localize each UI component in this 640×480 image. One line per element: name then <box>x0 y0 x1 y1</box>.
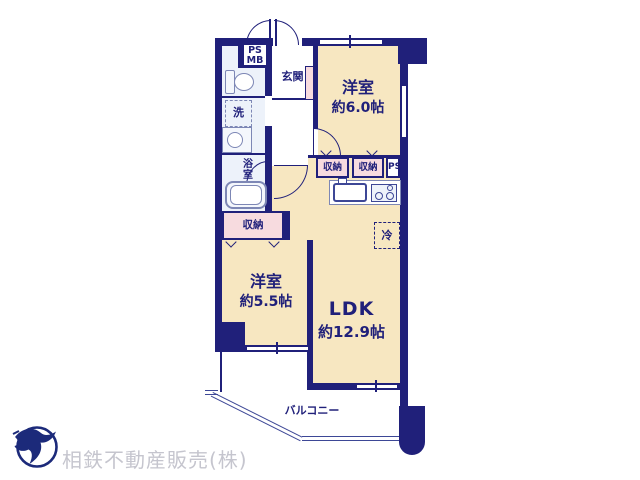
room-name: 洋室 <box>317 78 399 98</box>
window-bedroom6-right <box>400 86 408 137</box>
window-mullion <box>276 342 278 354</box>
wall-right-lower <box>400 137 408 408</box>
wall-ldk-bottom-stub <box>396 383 408 390</box>
wall-top-mid <box>302 38 320 46</box>
closet-kitchen-1: 収納 <box>316 157 349 178</box>
stove-burner <box>387 185 393 191</box>
wall-storage-ldk <box>283 211 290 240</box>
balcony-rail-bottom <box>302 436 399 441</box>
room-size: 約12.9帖 <box>303 323 400 342</box>
wall-left <box>215 38 222 352</box>
wall-ldk-bottom <box>307 383 357 390</box>
mb-label: MB <box>244 56 266 66</box>
kitchen-sink <box>333 183 367 202</box>
pipe-space-meter-box: PS MB <box>242 43 268 67</box>
room-name: 洋室 <box>224 272 308 292</box>
entrance-label: 玄関 <box>272 70 313 84</box>
washer-label: 洗 <box>225 106 252 120</box>
company-name: 相鉄不動産販売(株) <box>62 444 248 473</box>
window-mullion <box>375 380 377 392</box>
room-name: LDK <box>303 298 400 322</box>
window-bedroom6-top <box>320 38 382 46</box>
pipe-space-box: PS <box>386 157 400 178</box>
entrance-door-left-arc <box>246 20 271 45</box>
balcony-pillar <box>399 406 425 455</box>
closet-label: 収納 <box>323 162 342 173</box>
stove-burner <box>375 192 383 200</box>
wall-toilet-separator <box>222 96 265 98</box>
room-size: 約5.5帖 <box>224 294 308 312</box>
window-mullion <box>349 35 351 48</box>
wall-balcony-left-line <box>220 352 222 392</box>
room-size: 約6.0帖 <box>317 100 399 118</box>
sotetsu-bird-logo <box>12 421 60 471</box>
entrance-door-leaf <box>275 19 277 46</box>
window-ldk-bottom <box>357 383 397 390</box>
room-label-bedroom6: 洋室 約6.0帖 <box>317 78 399 118</box>
bathtub-inner <box>230 185 262 205</box>
ps-label: PS <box>388 162 401 172</box>
room-label-ldk: LDK 約12.9帖 <box>303 298 400 342</box>
vanity-sink <box>227 132 243 148</box>
bathroom-label: 浴室 <box>239 158 252 180</box>
entrance-door-right-arc <box>274 20 299 45</box>
closet-label: 収納 <box>358 162 377 173</box>
toilet-bowl <box>234 73 254 91</box>
room-label-bedroom55: 洋室 約5.5帖 <box>224 272 308 312</box>
balcony-rail-tick <box>205 390 218 395</box>
stove-burner <box>386 192 394 200</box>
entrance-door-leaf <box>269 19 271 46</box>
closet-label: 収納 <box>243 219 264 231</box>
wall-right-upper <box>400 38 408 86</box>
floor-plan: PS MB 収納 収納 PS 収納 洗 浴室 冷 洋室 約6.0帖 洋室 <box>0 0 640 480</box>
closet-kitchen-2: 収納 <box>352 157 384 178</box>
balcony-label: バルコニー <box>262 404 362 418</box>
refrigerator-label: 冷 <box>374 229 400 243</box>
wall-bath-separator <box>222 153 265 155</box>
